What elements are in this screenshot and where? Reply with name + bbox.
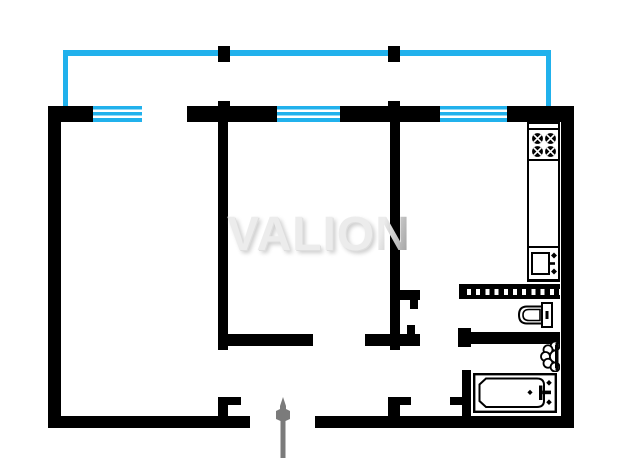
balcony-rail-top <box>63 50 551 56</box>
bottom-wall-right <box>315 416 574 428</box>
watermark-text-last: N <box>375 208 411 261</box>
balcony-divider-left <box>218 46 230 62</box>
balcony-rail-right <box>546 50 551 107</box>
hallway-door-jamb <box>400 397 411 405</box>
right-wall <box>561 106 574 428</box>
kitchen-sink-icon <box>527 246 560 281</box>
kitchen-door-jamb-c <box>407 325 415 334</box>
top-wall-bump-left <box>218 101 230 107</box>
bathroom-left-wall <box>462 370 471 416</box>
bathtub-icon <box>473 373 557 413</box>
top-wall-bump-right <box>388 101 400 107</box>
floor-plan: VALION <box>0 0 630 475</box>
hallway-door-stub <box>388 397 400 416</box>
left-wall <box>48 106 61 428</box>
balcony-rail-left <box>63 50 68 107</box>
kitchen-door-jamb-d <box>400 334 420 346</box>
window-bedroom <box>277 106 340 122</box>
kitchen-door-jamb-a <box>400 290 420 300</box>
window-livingroom <box>93 106 142 122</box>
bottom-wall-left <box>48 416 250 428</box>
toilet-icon <box>516 301 554 329</box>
valion-watermark: VALION <box>227 207 411 262</box>
livingroom-door-jamb <box>228 397 241 405</box>
stove-icon <box>527 128 560 161</box>
kitchen-door-jamb-b <box>410 300 418 309</box>
vent-block-wall-pattern <box>467 289 560 296</box>
window-kitchen <box>440 106 507 122</box>
top-wall-c <box>340 106 440 122</box>
vent-block-wall <box>459 284 560 299</box>
entrance-arrow-icon <box>270 396 296 460</box>
watermark-text-main: VALIO <box>227 208 375 261</box>
balcony-divider-right <box>388 46 400 62</box>
hallway-top-wall-left <box>218 334 313 346</box>
hallway-top-wall-right <box>365 334 390 346</box>
washbasin-icon <box>529 341 560 372</box>
top-wall-b <box>187 106 277 122</box>
livingroom-door-stub <box>218 397 228 416</box>
